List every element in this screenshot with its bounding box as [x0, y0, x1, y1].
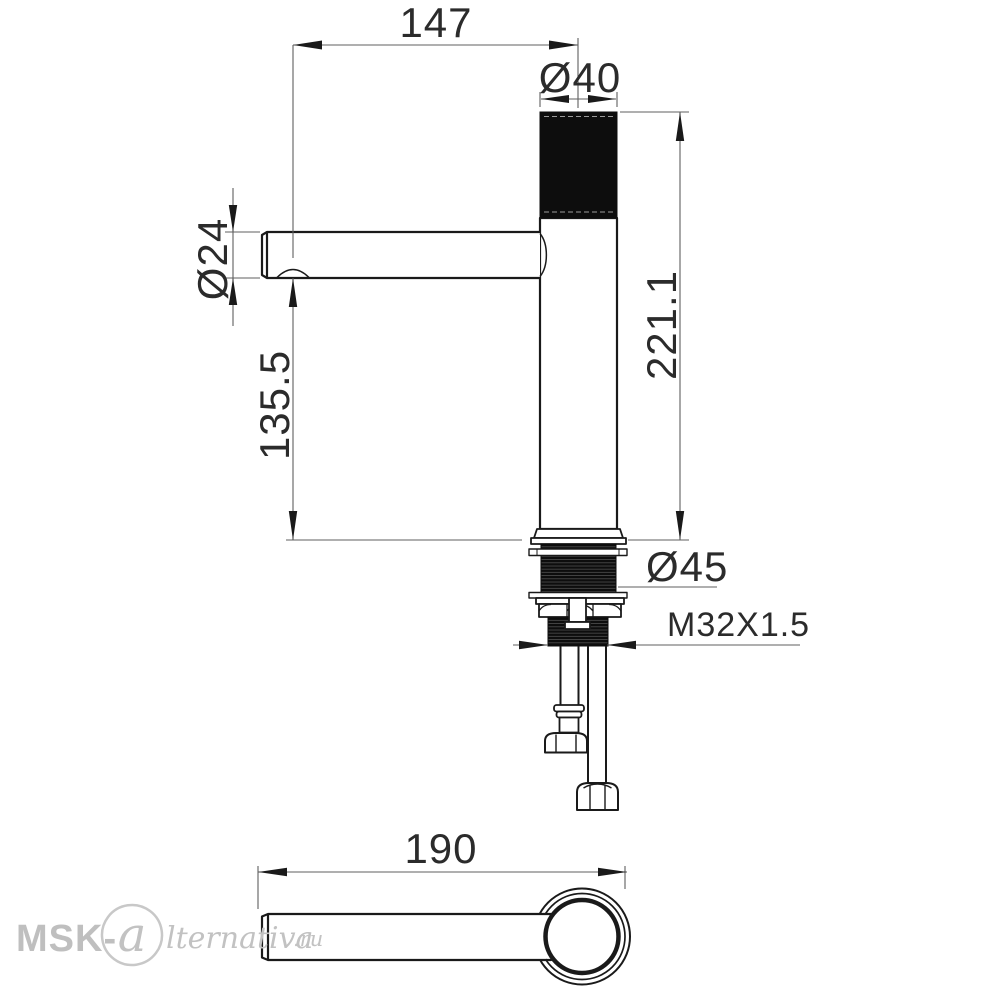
dim-spout-reach: 147 — [293, 0, 578, 258]
faucet-drawing: 147 Ø40 Ø24 221.1 135.5 — [0, 0, 1000, 1000]
fixing-stud-foot — [565, 622, 590, 629]
side-elevation-view — [262, 112, 627, 810]
dim-m32-arrow-left — [519, 641, 548, 649]
dim-total-height: 221.1 — [620, 112, 689, 540]
dim-190-arrow-left — [258, 868, 287, 876]
dim-135-arrow-top — [289, 278, 297, 307]
watermark-tld: .ru — [293, 927, 323, 951]
dim-spout-height-label: 135.5 — [251, 350, 298, 460]
dim-spout-reach-label: 147 — [399, 0, 472, 46]
dim-total-height-label: 221.1 — [638, 270, 685, 380]
fixing-stud — [569, 598, 586, 622]
dim-m32-arrow-right — [607, 641, 636, 649]
hose-right-hex-nut — [577, 783, 618, 810]
spout-fill — [263, 233, 540, 277]
dim-spout-diameter: Ø24 — [189, 188, 260, 326]
dim-147-arrow-left — [293, 41, 322, 50]
dim-cap-diameter: Ø40 — [539, 54, 621, 107]
base-flange-top — [534, 529, 623, 538]
dim-spout-height: 135.5 — [251, 278, 522, 540]
dim-147-arrow-right — [549, 41, 578, 50]
top-view: 190 — [258, 825, 630, 985]
dim-spout-length: 190 — [258, 825, 627, 909]
dimension-annotations: 147 Ø40 Ø24 221.1 135.5 — [189, 0, 810, 649]
dim-cap-diameter-label: Ø40 — [539, 54, 621, 101]
hose-left-hex-nut — [545, 733, 587, 753]
dim-spout-diameter-label: Ø24 — [189, 218, 236, 300]
dim-221-arrow-top — [676, 112, 684, 141]
dim-spout-length-label: 190 — [404, 825, 477, 872]
body-inner-ring — [546, 900, 619, 973]
watermark-name: lternativa — [166, 921, 313, 956]
supply-hose-right — [588, 646, 606, 783]
dim-flange-diameter-label: Ø45 — [646, 543, 728, 590]
base-flange-plate — [531, 538, 626, 544]
dim-221-arrow-bottom — [676, 511, 684, 540]
dim-flange-diameter: Ø45 — [618, 543, 728, 590]
faucet-body — [540, 218, 617, 529]
watermark-monogram: a — [118, 907, 147, 963]
hose-left-neck — [560, 718, 579, 733]
handle-knurled-cap — [540, 112, 617, 218]
technical-drawing-canvas: 147 Ø40 Ø24 221.1 135.5 — [0, 0, 1000, 1000]
rubber-washer-top — [529, 549, 627, 556]
supply-hose-left — [561, 646, 579, 705]
dim-135-lines — [286, 278, 522, 540]
dim-190-arrow-right — [598, 868, 627, 876]
hose-left-collar-1 — [554, 705, 584, 712]
dim-147-lines — [293, 38, 578, 258]
dim-mounting-thread-label: M32X1.5 — [667, 606, 810, 644]
dim-135-arrow-bottom — [289, 511, 297, 540]
